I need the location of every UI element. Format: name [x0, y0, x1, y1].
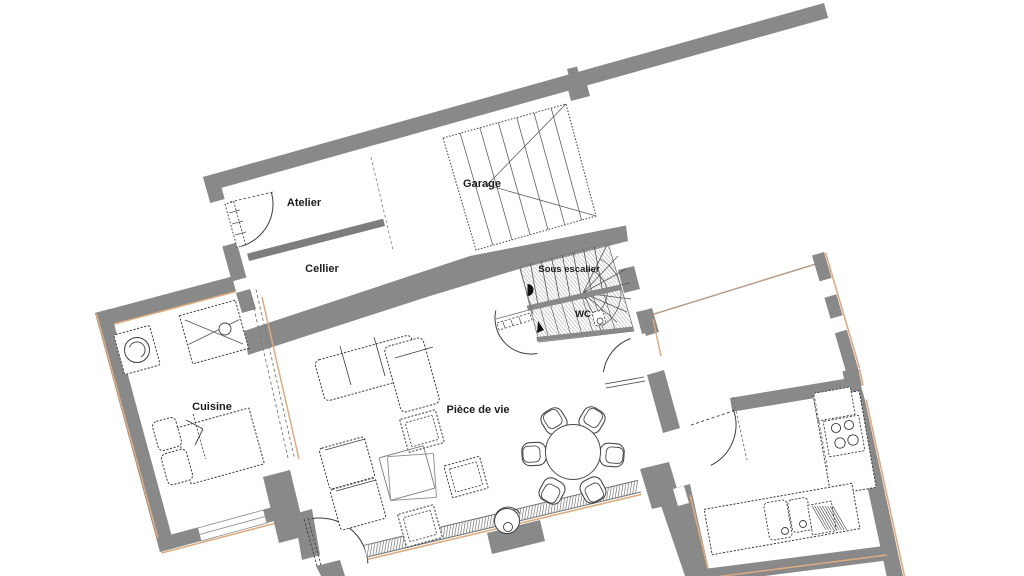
svg-text:Cellier: Cellier — [305, 263, 339, 275]
svg-text:Pièce de vie: Pièce de vie — [447, 404, 510, 416]
svg-text:Atelier: Atelier — [287, 197, 322, 209]
svg-text:Cuisine: Cuisine — [192, 401, 232, 413]
svg-text:Garage: Garage — [463, 178, 501, 190]
svg-text:WC: WC — [575, 309, 591, 320]
svg-text:Sous escalier: Sous escalier — [538, 264, 600, 275]
